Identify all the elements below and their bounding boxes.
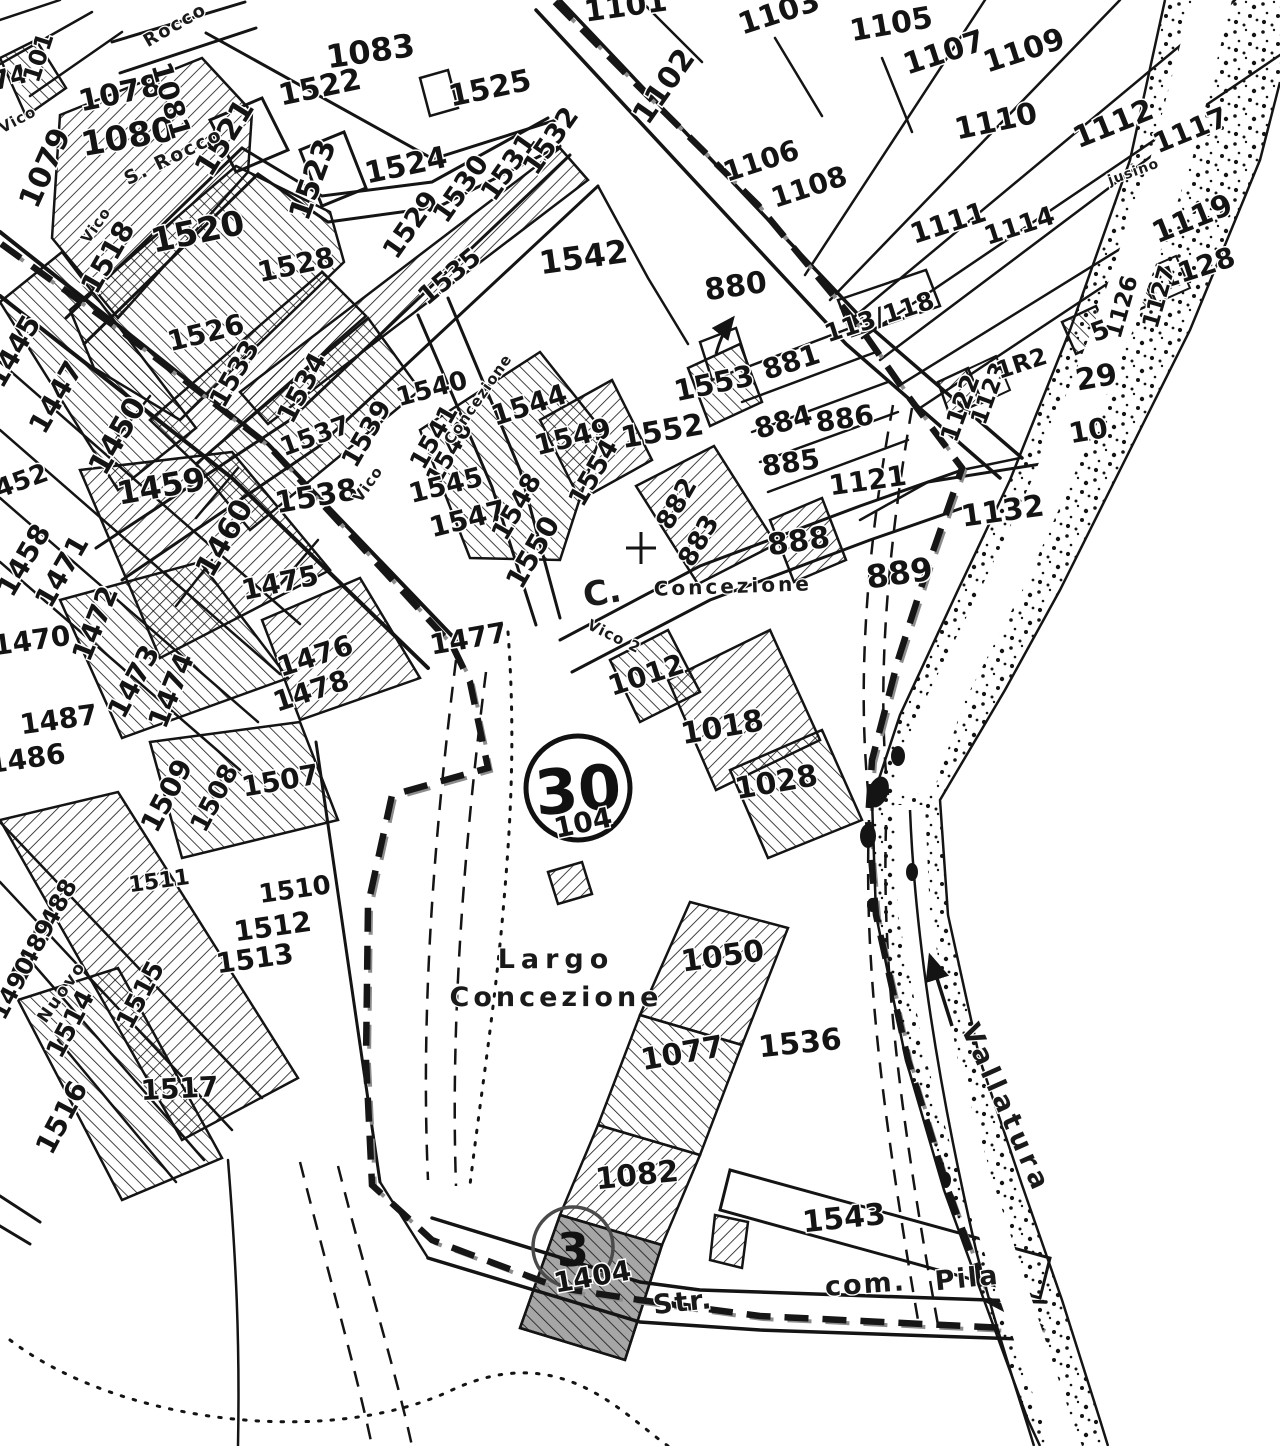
cadastral-map-canvas: 30 3 74101107910781080108110831522152515… — [0, 0, 1280, 1446]
street-label-com-: com. — [824, 1266, 907, 1303]
street-label-concezione: Concezione — [450, 982, 663, 1013]
cadastral-map-page: 30 3 74101107910781080108110831522152515… — [0, 0, 1280, 1446]
parcel-label-10: 10 — [1066, 411, 1110, 450]
street-label-str-: Str. — [652, 1284, 715, 1321]
parcel-label-1517: 1517 — [140, 1070, 220, 1107]
street-label-c-: C. — [580, 570, 624, 616]
street-label-largo: Largo — [498, 944, 615, 975]
parcel-label-29: 29 — [1073, 357, 1120, 399]
